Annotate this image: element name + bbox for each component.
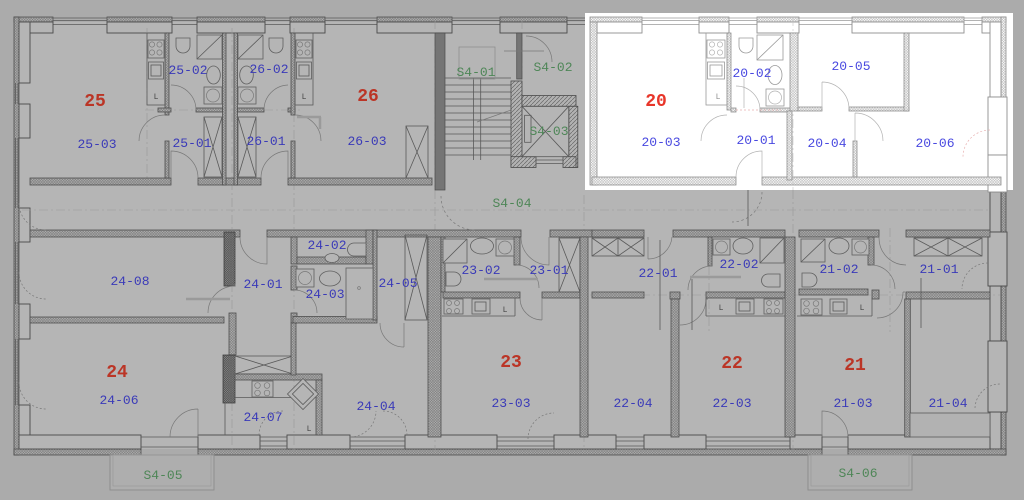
svg-text:25-01: 25-01 bbox=[172, 136, 211, 151]
svg-text:20-04: 20-04 bbox=[807, 136, 846, 151]
svg-text:L: L bbox=[860, 304, 865, 313]
svg-text:24-02: 24-02 bbox=[307, 238, 346, 253]
svg-text:23-01: 23-01 bbox=[529, 263, 568, 278]
svg-text:26-01: 26-01 bbox=[246, 134, 285, 149]
svg-text:S4-04: S4-04 bbox=[492, 196, 531, 211]
svg-text:20-05: 20-05 bbox=[831, 59, 870, 74]
svg-text:26: 26 bbox=[357, 87, 379, 107]
svg-text:L: L bbox=[307, 425, 312, 434]
svg-text:S4-03: S4-03 bbox=[529, 124, 568, 139]
svg-text:21-03: 21-03 bbox=[833, 396, 872, 411]
svg-text:L: L bbox=[719, 304, 724, 313]
svg-text:24-01: 24-01 bbox=[243, 277, 282, 292]
svg-text:21-01: 21-01 bbox=[919, 262, 958, 277]
svg-text:26-02: 26-02 bbox=[249, 62, 288, 77]
svg-text:22-02: 22-02 bbox=[719, 257, 758, 272]
svg-text:22-01: 22-01 bbox=[638, 266, 677, 281]
svg-text:L: L bbox=[503, 306, 508, 315]
svg-text:23: 23 bbox=[500, 353, 522, 373]
svg-text:23-03: 23-03 bbox=[491, 396, 530, 411]
svg-text:L: L bbox=[716, 93, 721, 102]
svg-text:22-04: 22-04 bbox=[613, 396, 652, 411]
svg-text:20-01: 20-01 bbox=[736, 133, 775, 148]
svg-text:21: 21 bbox=[844, 356, 866, 376]
svg-text:L: L bbox=[302, 93, 307, 102]
svg-text:20-06: 20-06 bbox=[915, 136, 954, 151]
svg-text:22: 22 bbox=[721, 354, 743, 374]
svg-text:S4-06: S4-06 bbox=[838, 466, 877, 481]
svg-text:S4-05: S4-05 bbox=[143, 468, 182, 483]
svg-text:20: 20 bbox=[645, 92, 667, 112]
svg-text:21-02: 21-02 bbox=[819, 262, 858, 277]
svg-text:24-07: 24-07 bbox=[243, 410, 282, 425]
svg-text:22-03: 22-03 bbox=[712, 396, 751, 411]
svg-text:24: 24 bbox=[106, 363, 128, 383]
svg-text:L: L bbox=[154, 93, 159, 102]
svg-text:20-02: 20-02 bbox=[732, 66, 771, 81]
svg-text:25-03: 25-03 bbox=[77, 137, 116, 152]
svg-text:21-04: 21-04 bbox=[928, 396, 967, 411]
svg-text:24-05: 24-05 bbox=[378, 276, 417, 291]
svg-text:23-02: 23-02 bbox=[461, 263, 500, 278]
svg-text:20-03: 20-03 bbox=[641, 135, 680, 150]
svg-text:26-03: 26-03 bbox=[347, 134, 386, 149]
svg-text:24-06: 24-06 bbox=[99, 393, 138, 408]
svg-text:24-04: 24-04 bbox=[356, 399, 395, 414]
svg-text:25-02: 25-02 bbox=[168, 63, 207, 78]
svg-text:24-08: 24-08 bbox=[110, 274, 149, 289]
svg-text:24-03: 24-03 bbox=[305, 287, 344, 302]
svg-text:S4-02: S4-02 bbox=[533, 60, 572, 75]
svg-text:25: 25 bbox=[84, 92, 106, 112]
svg-text:S4-01: S4-01 bbox=[456, 65, 495, 80]
